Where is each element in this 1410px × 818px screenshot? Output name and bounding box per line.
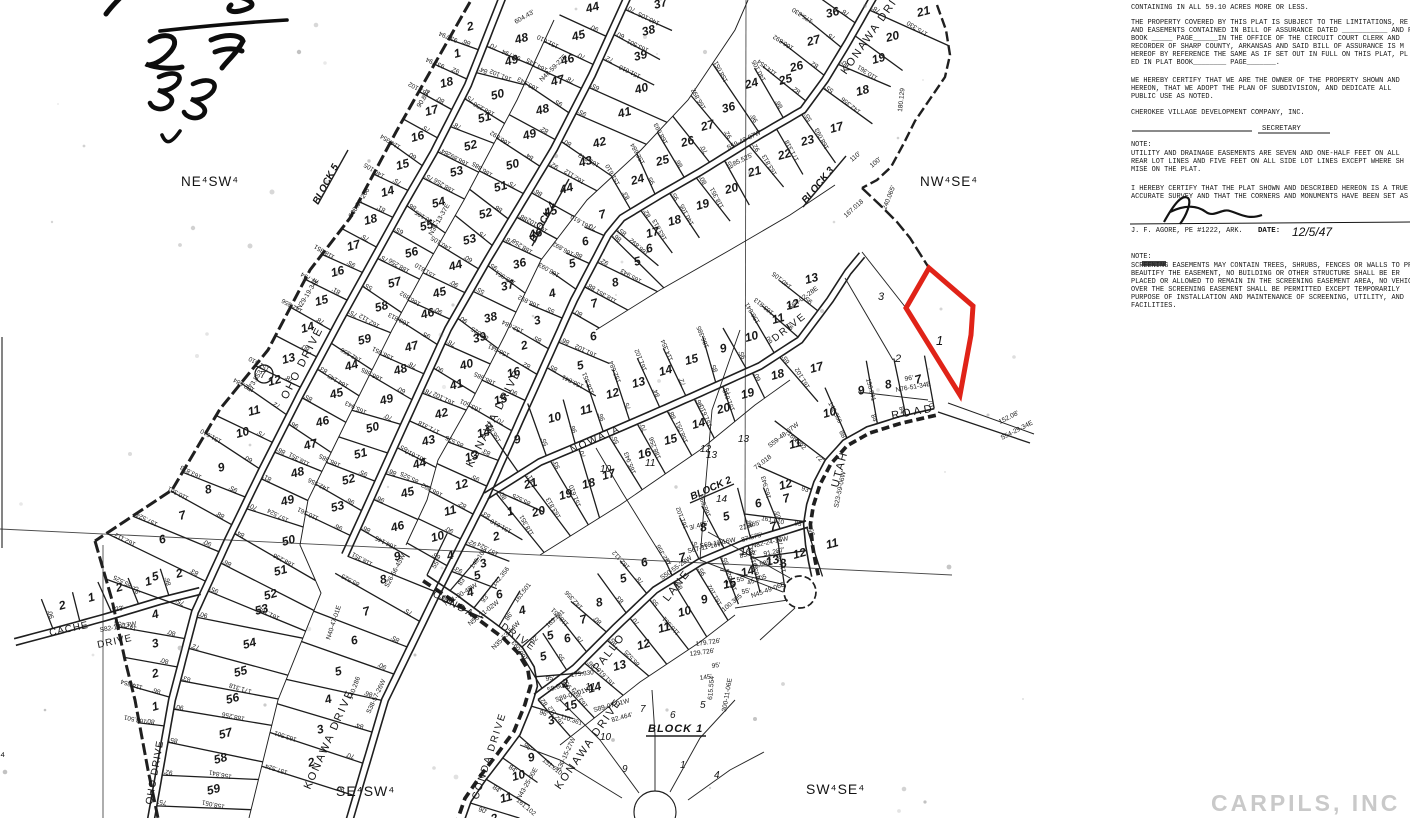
svg-text:CONTAINING IN ALL 59.10 ACRES: CONTAINING IN ALL 59.10 ACRES MORE OR LE… <box>1131 4 1309 12</box>
svg-text:9: 9 <box>622 764 628 775</box>
svg-text:UTILITY AND DRAINAGE EASEMENTS: UTILITY AND DRAINAGE EASEMENTS ARE SEVEN… <box>1131 150 1400 158</box>
svg-text:RECORDER OF SHARP COUNTY, ARKA: RECORDER OF SHARP COUNTY, ARKANSAS AND S… <box>1131 43 1404 51</box>
svg-text:BLOCK 1: BLOCK 1 <box>648 723 703 735</box>
svg-text:85': 85' <box>169 736 179 744</box>
svg-text:PLACED OR ALLOWED TO REMAIN IN: PLACED OR ALLOWED TO REMAIN IN THE SCREE… <box>1131 278 1410 286</box>
svg-text:WE HEREBY CERTIFY THAT WE ARE: WE HEREBY CERTIFY THAT WE ARE THE OWNER … <box>1131 77 1400 85</box>
svg-text:ED IN PLAT BOOK________ PAGE_: ED IN PLAT BOOK________ PAGE_______. <box>1131 59 1280 67</box>
svg-text:92': 92' <box>164 768 174 776</box>
svg-text:DATE:: DATE: <box>1258 227 1280 235</box>
svg-text:PURPOSE OF INSTALLATION AND: PURPOSE OF INSTALLATION AND MAINTENANCE … <box>1131 294 1404 302</box>
svg-text:10: 10 <box>600 464 612 475</box>
svg-text:OVER THE SCREENING EASEMENT: OVER THE SCREENING EASEMENT SHALL BE PER… <box>1131 286 1401 294</box>
svg-text:55': 55' <box>741 588 751 596</box>
svg-text:MISE ON THE PLAT.: MISE ON THE PLAT. <box>1131 166 1201 174</box>
svg-text:ACCURATE SURVEY AND THAT THE C: ACCURATE SURVEY AND THAT THE CORNERS AND… <box>1131 193 1408 201</box>
svg-text:90': 90' <box>175 703 185 711</box>
svg-text:BOOK _____ PAGE______IN THE O: BOOK _____ PAGE______IN THE OFFICE OF TH… <box>1131 35 1400 43</box>
svg-text:6: 6 <box>670 710 676 721</box>
svg-text:REAR LOT LINES AND FIVE FEET: REAR LOT LINES AND FIVE FEET ON ALL SIDE… <box>1131 158 1404 166</box>
svg-text:SCREENING EASEMENTS MAY CONTAI: SCREENING EASEMENTS MAY CONTAIN TREES, S… <box>1131 262 1410 270</box>
svg-text:HEREOF BY REFERENCE THE SAME A: HEREOF BY REFERENCE THE SAME AS IF SET O… <box>1131 51 1408 59</box>
svg-text:BEAUTIFY THE EASEMENT, NO BU: BEAUTIFY THE EASEMENT, NO BUILDING OR OT… <box>1131 270 1400 278</box>
svg-text:3: 3 <box>878 291 885 303</box>
svg-text:7: 7 <box>260 370 266 381</box>
svg-text:13: 13 <box>738 434 750 445</box>
svg-text:11: 11 <box>645 458 655 469</box>
svg-text:55': 55' <box>736 576 746 584</box>
svg-text:NOTE:: NOTE: <box>1131 141 1152 149</box>
svg-text:14: 14 <box>716 494 728 505</box>
svg-text:SECRETARY: SECRETARY <box>1262 125 1302 133</box>
svg-text:83': 83' <box>794 520 804 528</box>
svg-text:NOTE:: NOTE: <box>1131 253 1152 261</box>
svg-text:2: 2 <box>894 353 901 365</box>
svg-text:12/5/47: 12/5/47 <box>1292 225 1333 239</box>
svg-text:AND EASEMENTS CONTAINED IN BIL: AND EASEMENTS CONTAINED IN BILL OF ASSUR… <box>1131 27 1410 35</box>
svg-text:7: 7 <box>640 704 646 715</box>
svg-text:4: 4 <box>714 770 720 781</box>
svg-text:95': 95' <box>711 662 720 670</box>
svg-text:95': 95' <box>545 675 555 683</box>
svg-text:1: 1 <box>936 333 943 348</box>
svg-text:75': 75' <box>158 798 168 806</box>
svg-text:NW⁴SE⁴: NW⁴SE⁴ <box>920 174 978 189</box>
svg-text:12: 12 <box>700 444 712 455</box>
svg-text:⁴: ⁴ <box>0 749 5 763</box>
svg-text:SW⁴SE⁴: SW⁴SE⁴ <box>806 781 865 797</box>
svg-text:FACILITIES.: FACILITIES. <box>1131 302 1177 310</box>
svg-text:5: 5 <box>700 700 706 711</box>
svg-text:I HEREBY CERTIFY THAT THE PLAT: I HEREBY CERTIFY THAT THE PLAT SHOWN AND… <box>1131 185 1408 193</box>
svg-text:PUBLIC USE AS NOTED.: PUBLIC USE AS NOTED. <box>1131 93 1214 101</box>
svg-text:CHEROKEE VILLAGE DEVELOPMENT C: CHEROKEE VILLAGE DEVELOPMENT COMPANY, IN… <box>1131 109 1305 117</box>
svg-text:96': 96' <box>904 375 914 383</box>
svg-text:SE⁴SW⁴: SE⁴SW⁴ <box>336 783 395 799</box>
svg-text:CARPILS, INC: CARPILS, INC <box>1211 790 1400 816</box>
svg-text:NE⁴SW⁴: NE⁴SW⁴ <box>181 174 239 189</box>
svg-text:1: 1 <box>680 760 686 771</box>
svg-text:15: 15 <box>724 580 736 591</box>
svg-text:HEREON, THAT WE ADOPT THE PL: HEREON, THAT WE ADOPT THE PLAN OF SUBDIV… <box>1131 85 1392 93</box>
svg-text:J. F. AGORE, PE #1222, ARK.: J. F. AGORE, PE #1222, ARK. <box>1131 227 1243 235</box>
svg-text:THE PROPERTY COVERED BY THIS: THE PROPERTY COVERED BY THIS PLAT IS SUB… <box>1131 19 1408 27</box>
